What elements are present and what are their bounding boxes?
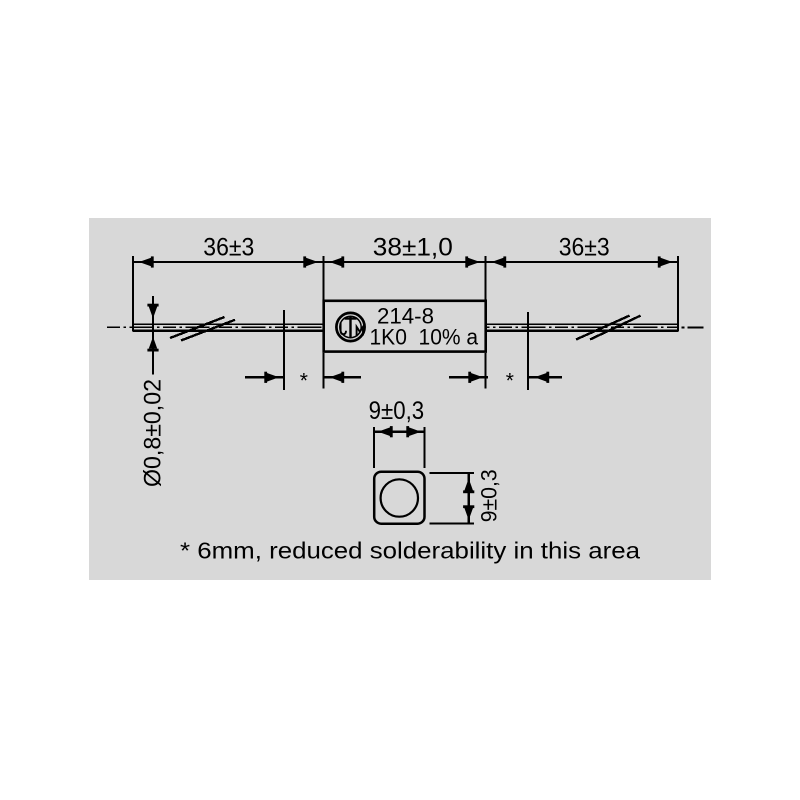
- svg-text:1K0 10% a: 1K0 10% a: [370, 325, 479, 350]
- svg-text:* 6mm, reduced solderability i: * 6mm, reduced solderability in this are…: [180, 538, 640, 564]
- svg-text:Ø0,8±0,02: Ø0,8±0,02: [140, 379, 167, 487]
- svg-text:9±0,3: 9±0,3: [369, 397, 425, 425]
- svg-text:36±3: 36±3: [203, 234, 254, 262]
- svg-text:38±1,0: 38±1,0: [373, 234, 453, 262]
- svg-text:*: *: [506, 370, 514, 393]
- svg-text:36±3: 36±3: [559, 234, 610, 262]
- svg-text:9±0,3: 9±0,3: [477, 469, 502, 522]
- svg-text:*: *: [300, 370, 308, 393]
